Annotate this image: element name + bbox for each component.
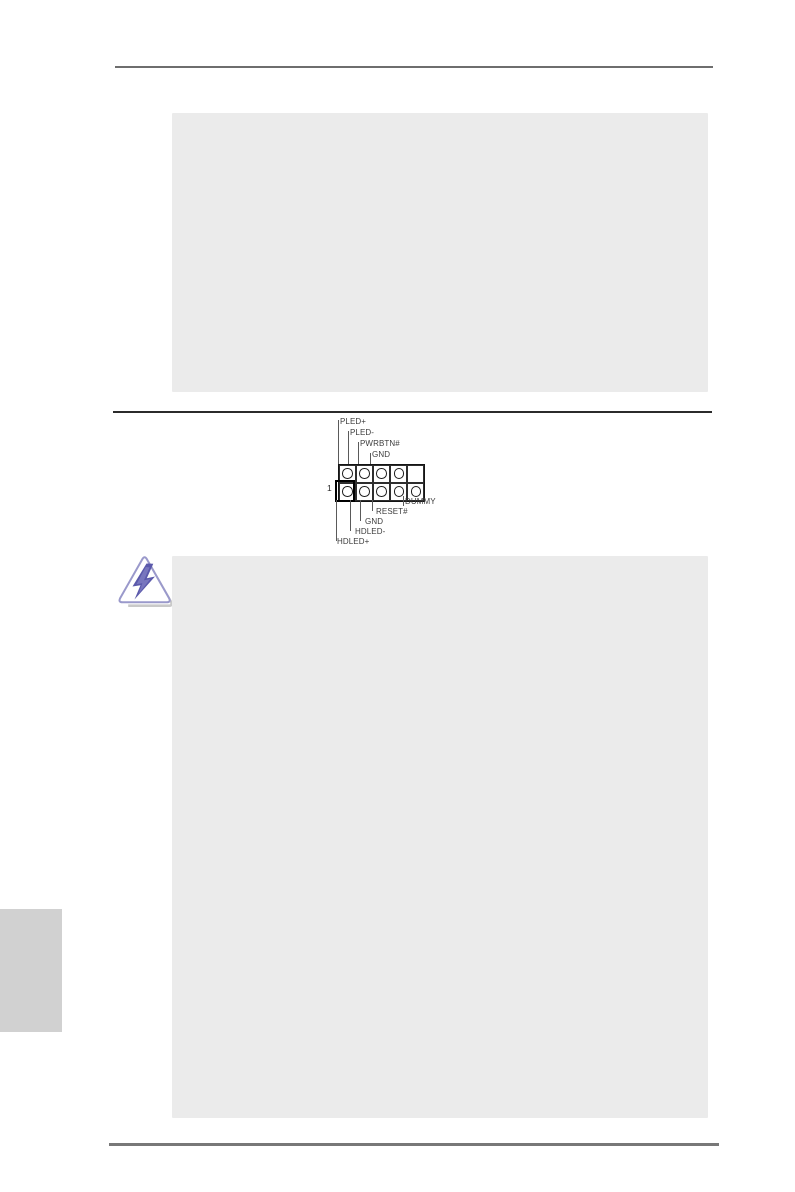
header-rule: [115, 66, 713, 68]
pin-cell: [356, 483, 373, 501]
pin-label-pled-minus: PLED-: [350, 429, 374, 437]
pin-connector-line: [336, 500, 337, 541]
pin-connector-line: [348, 431, 349, 464]
pin-cell: [390, 465, 407, 483]
footer-rule: [109, 1143, 719, 1146]
faded-note-box-main: [172, 556, 708, 1118]
pin-circle: [359, 468, 370, 479]
pin-circle: [411, 486, 422, 497]
pin-circle: [359, 486, 370, 497]
pin-connector-line: [360, 500, 361, 521]
pin-circle: [376, 486, 387, 497]
pin-label-gnd-bottom: GND: [365, 518, 383, 526]
pin-connector-line: [358, 442, 359, 465]
pin-connector-line: [372, 500, 373, 511]
pin-label-dummy: DUMMY: [405, 498, 436, 506]
manual-page: PLED+ PLED- PWRBTN# GND 1 DUMMY RESET# G…: [0, 0, 795, 1192]
pin-label-reset: RESET#: [376, 508, 408, 516]
pin-label-hdled-minus: HDLED-: [355, 528, 385, 536]
faded-note-box-top: [172, 113, 708, 392]
pin-connector-line: [403, 496, 404, 506]
pin-label-pled-plus: PLED+: [340, 418, 366, 426]
language-side-tab: [0, 909, 62, 1032]
pin-cell: [373, 483, 390, 501]
pin-cell: [339, 465, 356, 483]
pin-cell: [339, 483, 356, 501]
pin-label-hdled-plus: HDLED+: [337, 538, 369, 546]
caution-icon: [115, 554, 175, 608]
pin-cell: [407, 465, 424, 483]
pin-circle: [394, 468, 405, 479]
pin-cell: [356, 465, 373, 483]
system-panel-header-diagram: PLED+ PLED- PWRBTN# GND 1 DUMMY RESET# G…: [320, 414, 470, 554]
pin-cell: [373, 465, 390, 483]
pin-circle: [376, 468, 387, 479]
pin-label-pwrbtn: PWRBTN#: [360, 440, 400, 448]
pin-circle: [342, 468, 353, 479]
pin-connector-line: [338, 420, 339, 464]
pin-grid: [338, 464, 425, 502]
section-divider-rule: [113, 411, 712, 413]
pin-one-number: 1: [327, 483, 332, 493]
pin-label-gnd-top: GND: [372, 451, 390, 459]
pin-connector-line: [370, 453, 371, 465]
pin-circle: [342, 486, 353, 497]
pin-connector-line: [350, 500, 351, 531]
